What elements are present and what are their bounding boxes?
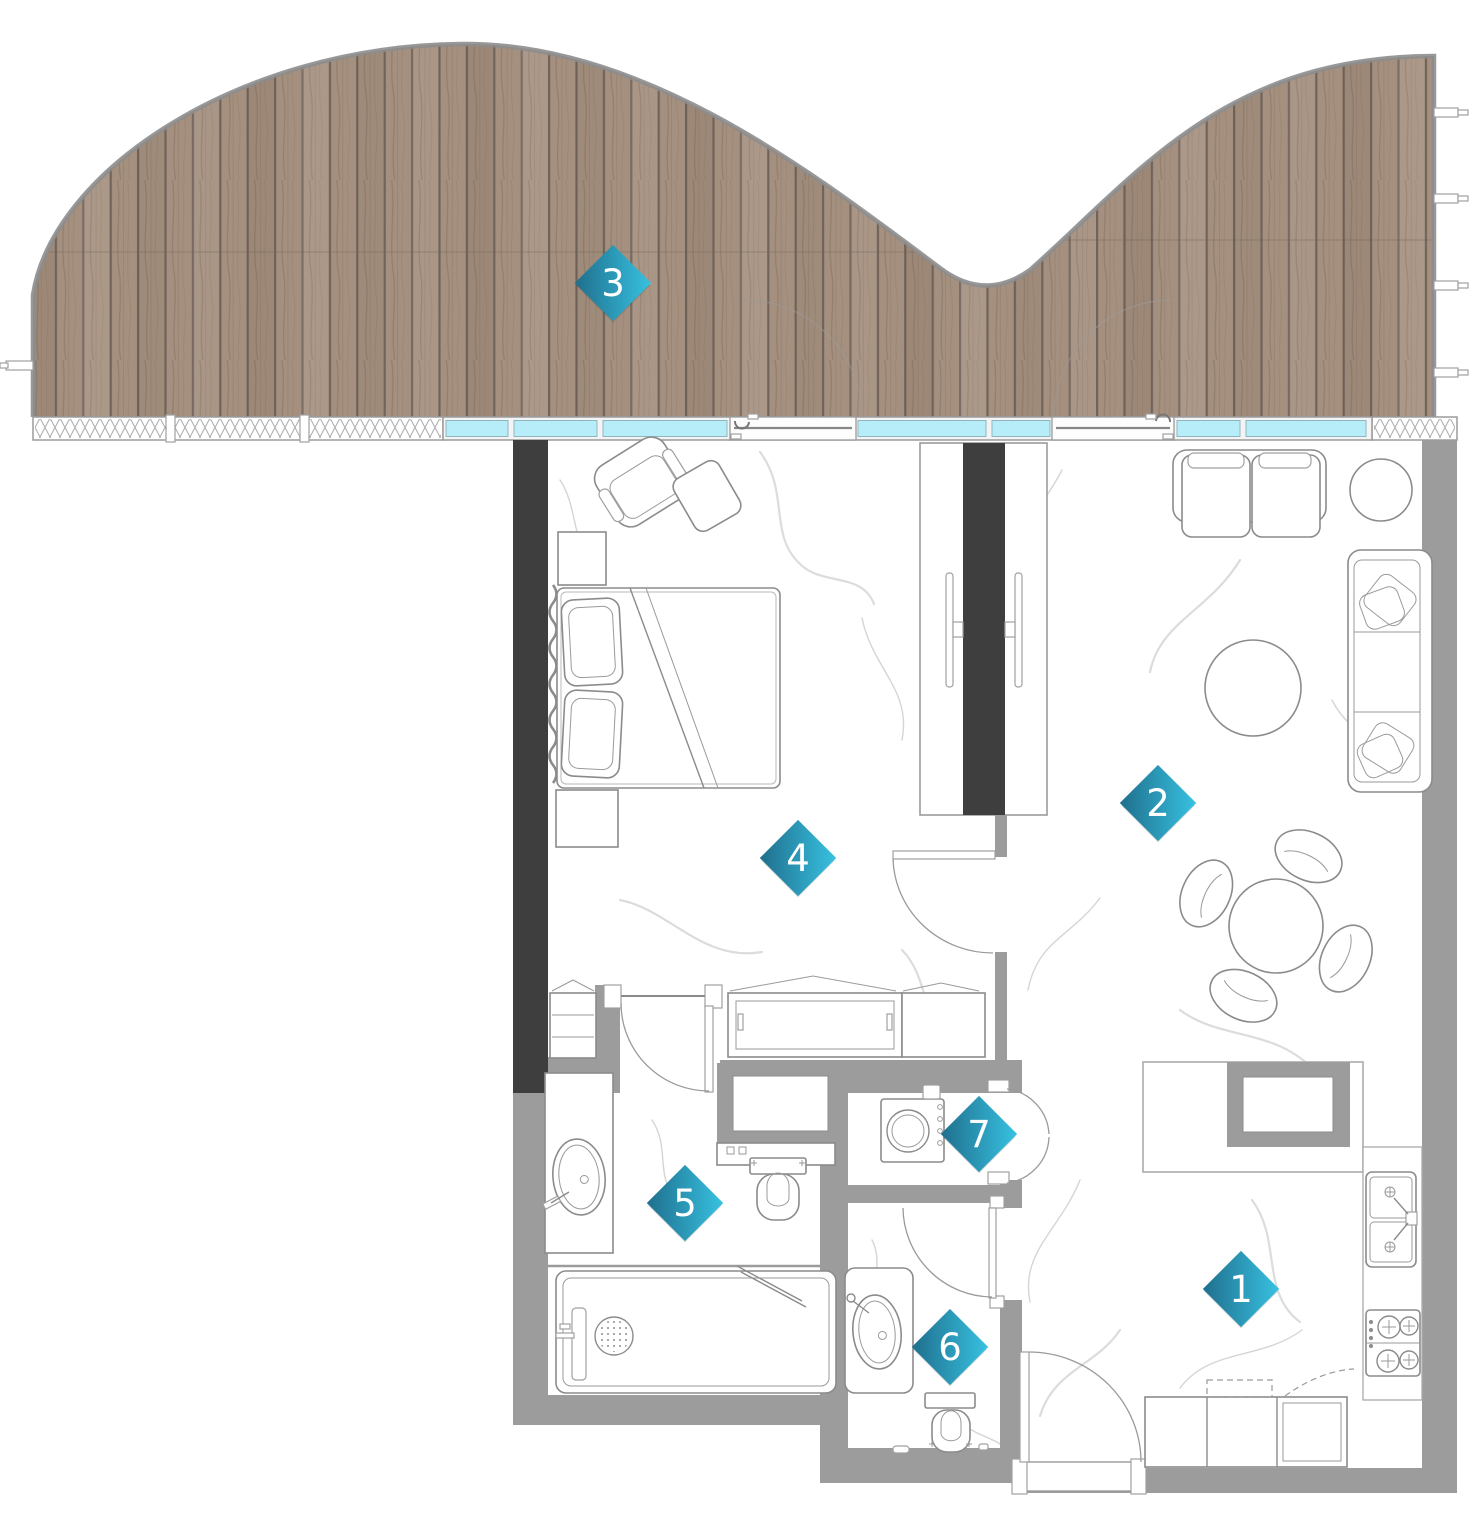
room-marker-label: 4 [786, 837, 810, 880]
lattice-railing [35, 419, 441, 438]
side-table [1350, 459, 1412, 521]
guest-bath-door[interactable] [903, 1196, 1004, 1308]
window-glass [514, 421, 597, 437]
kitchen [1143, 1062, 1422, 1467]
dining-set [1142, 792, 1410, 1060]
floorplan-canvas: 1 2 3 4 5 6 7 [0, 0, 1469, 1513]
wall-corridor [1000, 1300, 1022, 1468]
wall-step [820, 1395, 848, 1483]
terrace-deck [0, 44, 1468, 442]
sliding-door[interactable] [730, 414, 856, 440]
stove [1366, 1310, 1420, 1376]
dresser [728, 976, 985, 1057]
wall-corridor [995, 952, 1007, 1093]
window-glass [992, 421, 1050, 437]
living-room [1142, 450, 1432, 1060]
wall-bottom-left [513, 1395, 848, 1425]
coffee-table [1205, 640, 1301, 736]
upper-cabinet-dashed [1207, 1380, 1272, 1397]
wall-laundry-bath [845, 1185, 1000, 1203]
vanity-sink [543, 1073, 613, 1253]
wall-bottom-mid [845, 1448, 1022, 1483]
wall-stub [995, 815, 1007, 857]
laundry-closet [881, 1085, 944, 1162]
entry-door[interactable] [1012, 1352, 1146, 1494]
window-glass [446, 421, 508, 437]
bedside-bench [556, 790, 618, 847]
fridge-swing-dashed [1285, 1369, 1354, 1396]
room-marker-7[interactable]: 7 [940, 1096, 1018, 1174]
window-glass [858, 421, 986, 437]
washing-machine [881, 1085, 944, 1162]
vanity-sink [845, 1268, 913, 1393]
kitchen-sink [1366, 1172, 1417, 1267]
deck-railing-band [33, 414, 1457, 442]
room-marker-label: 2 [1146, 782, 1170, 825]
lattice-railing [1374, 419, 1455, 438]
room-marker-label: 3 [601, 262, 625, 305]
window-glass [603, 421, 727, 437]
bed [550, 585, 781, 788]
window-glass [1177, 421, 1240, 437]
wall-left-dark [513, 440, 548, 1093]
room-marker-label: 6 [938, 1326, 962, 1369]
pillow [561, 598, 623, 687]
pillow [561, 690, 623, 779]
room-marker-1[interactable]: 1 [1202, 1251, 1280, 1329]
partition-core [963, 443, 1005, 815]
nightstand [558, 532, 606, 585]
wall-niche-recess [733, 1076, 828, 1131]
bedroom-door[interactable] [893, 851, 995, 953]
room-marker-6[interactable]: 6 [911, 1309, 989, 1387]
wardrobe-partition [920, 443, 1047, 815]
dining-table [1229, 879, 1323, 973]
bathroom-door[interactable] [604, 985, 722, 1092]
loveseat-sofa [1173, 450, 1326, 537]
room-marker-label: 1 [1229, 1268, 1253, 1311]
window-glass [1246, 421, 1366, 437]
headboard [550, 585, 557, 783]
bathtub-shower [556, 1266, 836, 1393]
toilet [717, 1143, 835, 1220]
base-cabinets [1145, 1369, 1354, 1467]
chaise-sofa [1348, 550, 1432, 792]
room-marker-4[interactable]: 4 [759, 820, 837, 898]
open-shelf-nightstand [550, 980, 596, 1058]
room-marker-label: 5 [673, 1182, 697, 1225]
wall-left [513, 1093, 548, 1425]
kitchen-island [1143, 1062, 1363, 1172]
room-marker-5[interactable]: 5 [646, 1165, 724, 1243]
room-marker-2[interactable]: 2 [1119, 765, 1197, 843]
toilet-paper-holder [893, 1446, 909, 1453]
toilet [893, 1393, 988, 1453]
room-marker-label: 7 [967, 1113, 991, 1156]
floorplan-drawing: 1 2 3 4 5 6 7 [0, 0, 1469, 1513]
sliding-door[interactable] [1052, 414, 1174, 440]
